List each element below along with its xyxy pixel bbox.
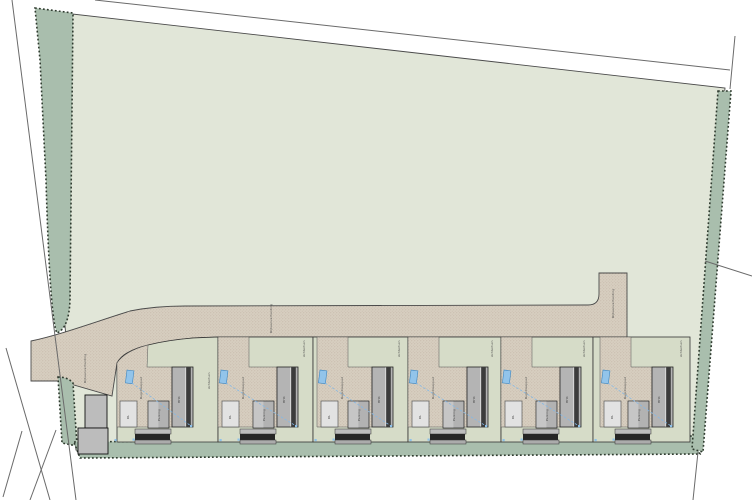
- lot-6-shed-label: DL: [610, 415, 614, 419]
- lot-2-outbuilding-label: Parking: [262, 409, 266, 421]
- lot-5-driveway-label: Rugstreeppad: [524, 377, 528, 399]
- lot-3-corner-marker-2: [333, 439, 335, 441]
- lot-2-blue-marker: [219, 370, 228, 384]
- lot-5-corner-marker-3: [503, 439, 505, 441]
- lot-4-terrace-top: [430, 429, 466, 434]
- lot-3-terrace-wall: [335, 434, 370, 440]
- west-building-lower: [78, 428, 108, 454]
- lot-1-shed-label: DL: [126, 415, 130, 419]
- lot-5-house-joint: [573, 367, 574, 426]
- lot-3-driveway-label: Rugstreeppad: [340, 377, 344, 399]
- lot-5: RugstreeppadHH4ParkingDLAchtertuin: [501, 337, 593, 444]
- lot-6-blue-marker: [601, 370, 610, 384]
- lot-1-terrace-top: [135, 429, 171, 434]
- lot-1-corner-marker-2: [133, 439, 135, 441]
- lot-1-house-joint: [185, 367, 186, 426]
- lot-3-house-joint: [385, 367, 386, 426]
- lot-5-outbuilding-label: Parking: [545, 409, 549, 421]
- lot-4-shed: [412, 401, 429, 427]
- lot-1-terrace-bottom: [135, 440, 171, 444]
- lot-3-corner-marker-1: [390, 425, 392, 427]
- lot-1-garden-label: Achtertuin: [207, 372, 211, 389]
- lot-3-house-dark-wing: [386, 367, 391, 426]
- lot-6-shed: [604, 401, 621, 427]
- lot-4-corner-marker-2: [428, 439, 430, 441]
- lot-1-house-dark-wing: [186, 367, 191, 426]
- lot-5-garden-label: Achtertuin: [582, 340, 586, 357]
- lot-6-house-dark-wing: [666, 367, 671, 426]
- lot-6-house-label: HH4: [657, 396, 661, 403]
- lot-6-outbuilding-label: Parking: [637, 409, 641, 421]
- lot-5-terrace-top: [523, 429, 559, 434]
- lot-6-garden-label: Achtertuin: [679, 340, 683, 357]
- lot-1-corner-marker-3: [115, 439, 117, 441]
- lot-4-outbuilding-label: Parking: [452, 409, 456, 421]
- road-label-west: Rijbaanverharding: [83, 354, 87, 383]
- lot-1-terrace-wall: [135, 434, 170, 440]
- lot-2-terrace-bottom: [240, 440, 276, 444]
- lot-3-terrace-bottom: [335, 440, 371, 444]
- lot-4-corner-marker-1: [485, 425, 487, 427]
- lot-6-corner-marker-3: [595, 439, 597, 441]
- lot-2-shed-label: DL: [228, 415, 232, 419]
- lot-1-house-label: HH4: [177, 396, 181, 403]
- lot-6-terrace-wall: [615, 434, 650, 440]
- lot-1-blue-marker: [125, 370, 134, 384]
- lot-1-corner-marker-1: [190, 425, 192, 427]
- lot-2-driveway-label: Rugstreeppad: [241, 377, 245, 399]
- lot-5-corner-marker-1: [578, 425, 580, 427]
- lot-5-terrace-wall: [523, 434, 558, 440]
- lot-2-terrace-top: [240, 429, 276, 434]
- lot-1-driveway-label: Rugstreeppad: [139, 377, 143, 399]
- lot-4-blue-marker: [409, 370, 418, 384]
- lot-4: RugstreeppadHH4ParkingDLAchtertuin: [408, 337, 501, 444]
- lot-3-shed-label: DL: [327, 415, 331, 419]
- lot-5-shed: [505, 401, 522, 427]
- lot-3-terrace-top: [335, 429, 371, 434]
- lot-6-driveway-label: Rugstreeppad: [623, 377, 627, 399]
- lot-5-house-dark-wing: [574, 367, 579, 426]
- lot-2-house-joint: [290, 367, 291, 426]
- west-building-upper: [85, 395, 107, 428]
- lot-4-house-label: HH4: [472, 396, 476, 403]
- lot-4-corner-marker-3: [410, 439, 412, 441]
- lot-1-outbuilding-label: Parking: [157, 409, 161, 421]
- lot-2-corner-marker-1: [295, 425, 297, 427]
- lot-4-house-joint: [480, 367, 481, 426]
- lot-3-house-label: HH4: [377, 396, 381, 403]
- lot-6-house-joint: [665, 367, 666, 426]
- lot-6-corner-marker-1: [670, 425, 672, 427]
- lot-3-outbuilding-label: Parking: [357, 409, 361, 421]
- lot-5-house-label: HH4: [565, 396, 569, 403]
- lot-4-house-dark-wing: [481, 367, 486, 426]
- lot-6-terrace-top: [615, 429, 651, 434]
- lot-2-terrace-wall: [240, 434, 275, 440]
- lot-5-terrace-bottom: [523, 440, 559, 444]
- lot-2: RugstreeppadHH4ParkingDLAchtertuin: [218, 337, 313, 444]
- lot-2-house-label: HH4: [282, 396, 286, 403]
- lot-2-house-dark-wing: [291, 367, 296, 426]
- lot-4-terrace-wall: [430, 434, 465, 440]
- site-plan-canvas: Rijbaanverharding Rijbaanverharding Rijb…: [0, 0, 752, 500]
- lot-3: RugstreeppadHH4ParkingDLAchtertuin: [313, 337, 408, 444]
- lot-2-shed: [222, 401, 239, 427]
- lot-4-shed-label: DL: [418, 415, 422, 419]
- lot-6-terrace-bottom: [615, 440, 651, 444]
- road-label-main: Rijbaanverharding: [269, 304, 273, 333]
- lot-3-blue-marker: [318, 370, 327, 384]
- lot-6-corner-marker-2: [613, 439, 615, 441]
- lot-4-garden-label: Achtertuin: [490, 340, 494, 357]
- lot-3-corner-marker-3: [315, 439, 317, 441]
- lot-1: RugstreeppadHH4ParkingDLAchtertuin: [115, 337, 219, 444]
- lot-5-shed-label: DL: [511, 415, 515, 419]
- lot-3-shed: [321, 401, 338, 427]
- housing-lots: RugstreeppadHH4ParkingDLAchtertuinRugstr…: [115, 337, 691, 444]
- lot-2-corner-marker-2: [238, 439, 240, 441]
- lot-4-driveway-label: Rugstreeppad: [431, 377, 435, 399]
- lot-3-garden-label: Achtertuin: [397, 340, 401, 357]
- lot-6: RugstreeppadHH4ParkingDLAchtertuin: [593, 337, 690, 444]
- lot-2-garden-label: Achtertuin: [302, 340, 306, 357]
- lot-2-corner-marker-3: [220, 439, 222, 441]
- road-label-branch: Rijbaanverharding: [611, 289, 615, 318]
- lot-4-terrace-bottom: [430, 440, 466, 444]
- lot-5-blue-marker: [502, 370, 511, 384]
- lot-5-corner-marker-2: [521, 439, 523, 441]
- lot-1-shed: [120, 401, 137, 427]
